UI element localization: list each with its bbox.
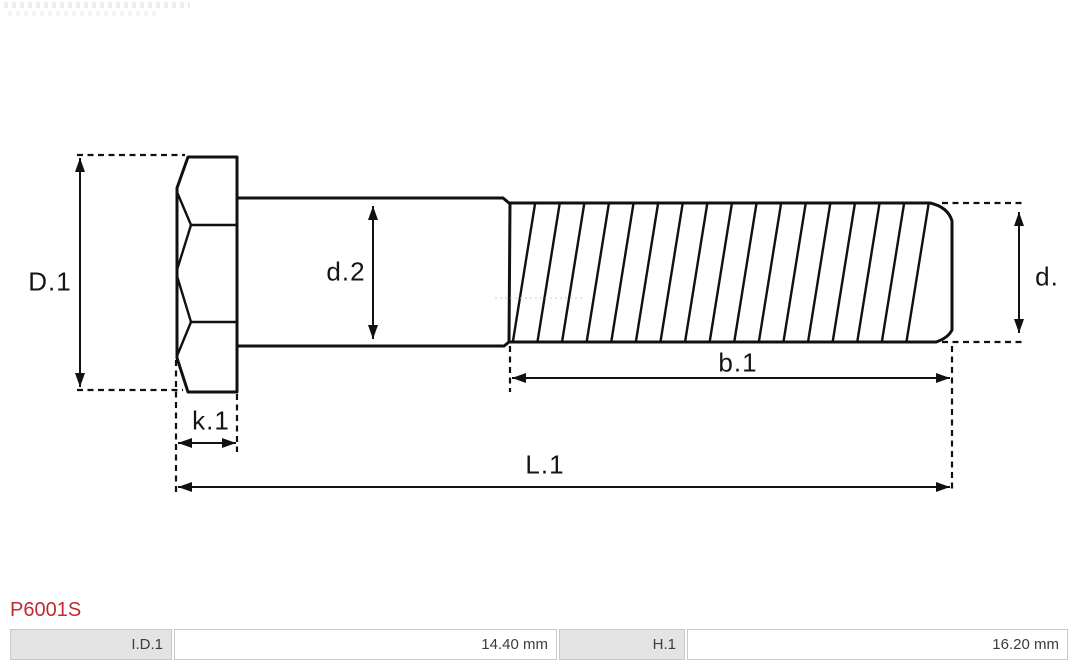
label-thread-diameter: d.: [1035, 262, 1059, 293]
spec-table: I.D.1 14.40 mm H.1 16.20 mm: [10, 629, 1068, 660]
spec-value-id1: 14.40 mm: [174, 629, 557, 660]
label-thread-length: b.1: [718, 348, 757, 379]
bolt-drawing: [0, 0, 1080, 668]
part-number: P6001S: [10, 599, 81, 622]
label-total-length: L.1: [525, 450, 564, 481]
spec-label-id1: I.D.1: [10, 629, 172, 660]
label-shank-diameter: d.2: [326, 257, 365, 288]
label-head-diameter: D.1: [28, 267, 71, 298]
bolt-head: [177, 157, 237, 392]
label-head-height: k.1: [192, 406, 230, 437]
spec-value-h1: 16.20 mm: [687, 629, 1068, 660]
product-drawing-page: D.1 d.2 d. k.1 b.1 L.1 P6001S I.D.1 14.4…: [0, 0, 1080, 668]
thread-hatch-lines: [513, 204, 929, 341]
spec-label-h1: H.1: [559, 629, 685, 660]
